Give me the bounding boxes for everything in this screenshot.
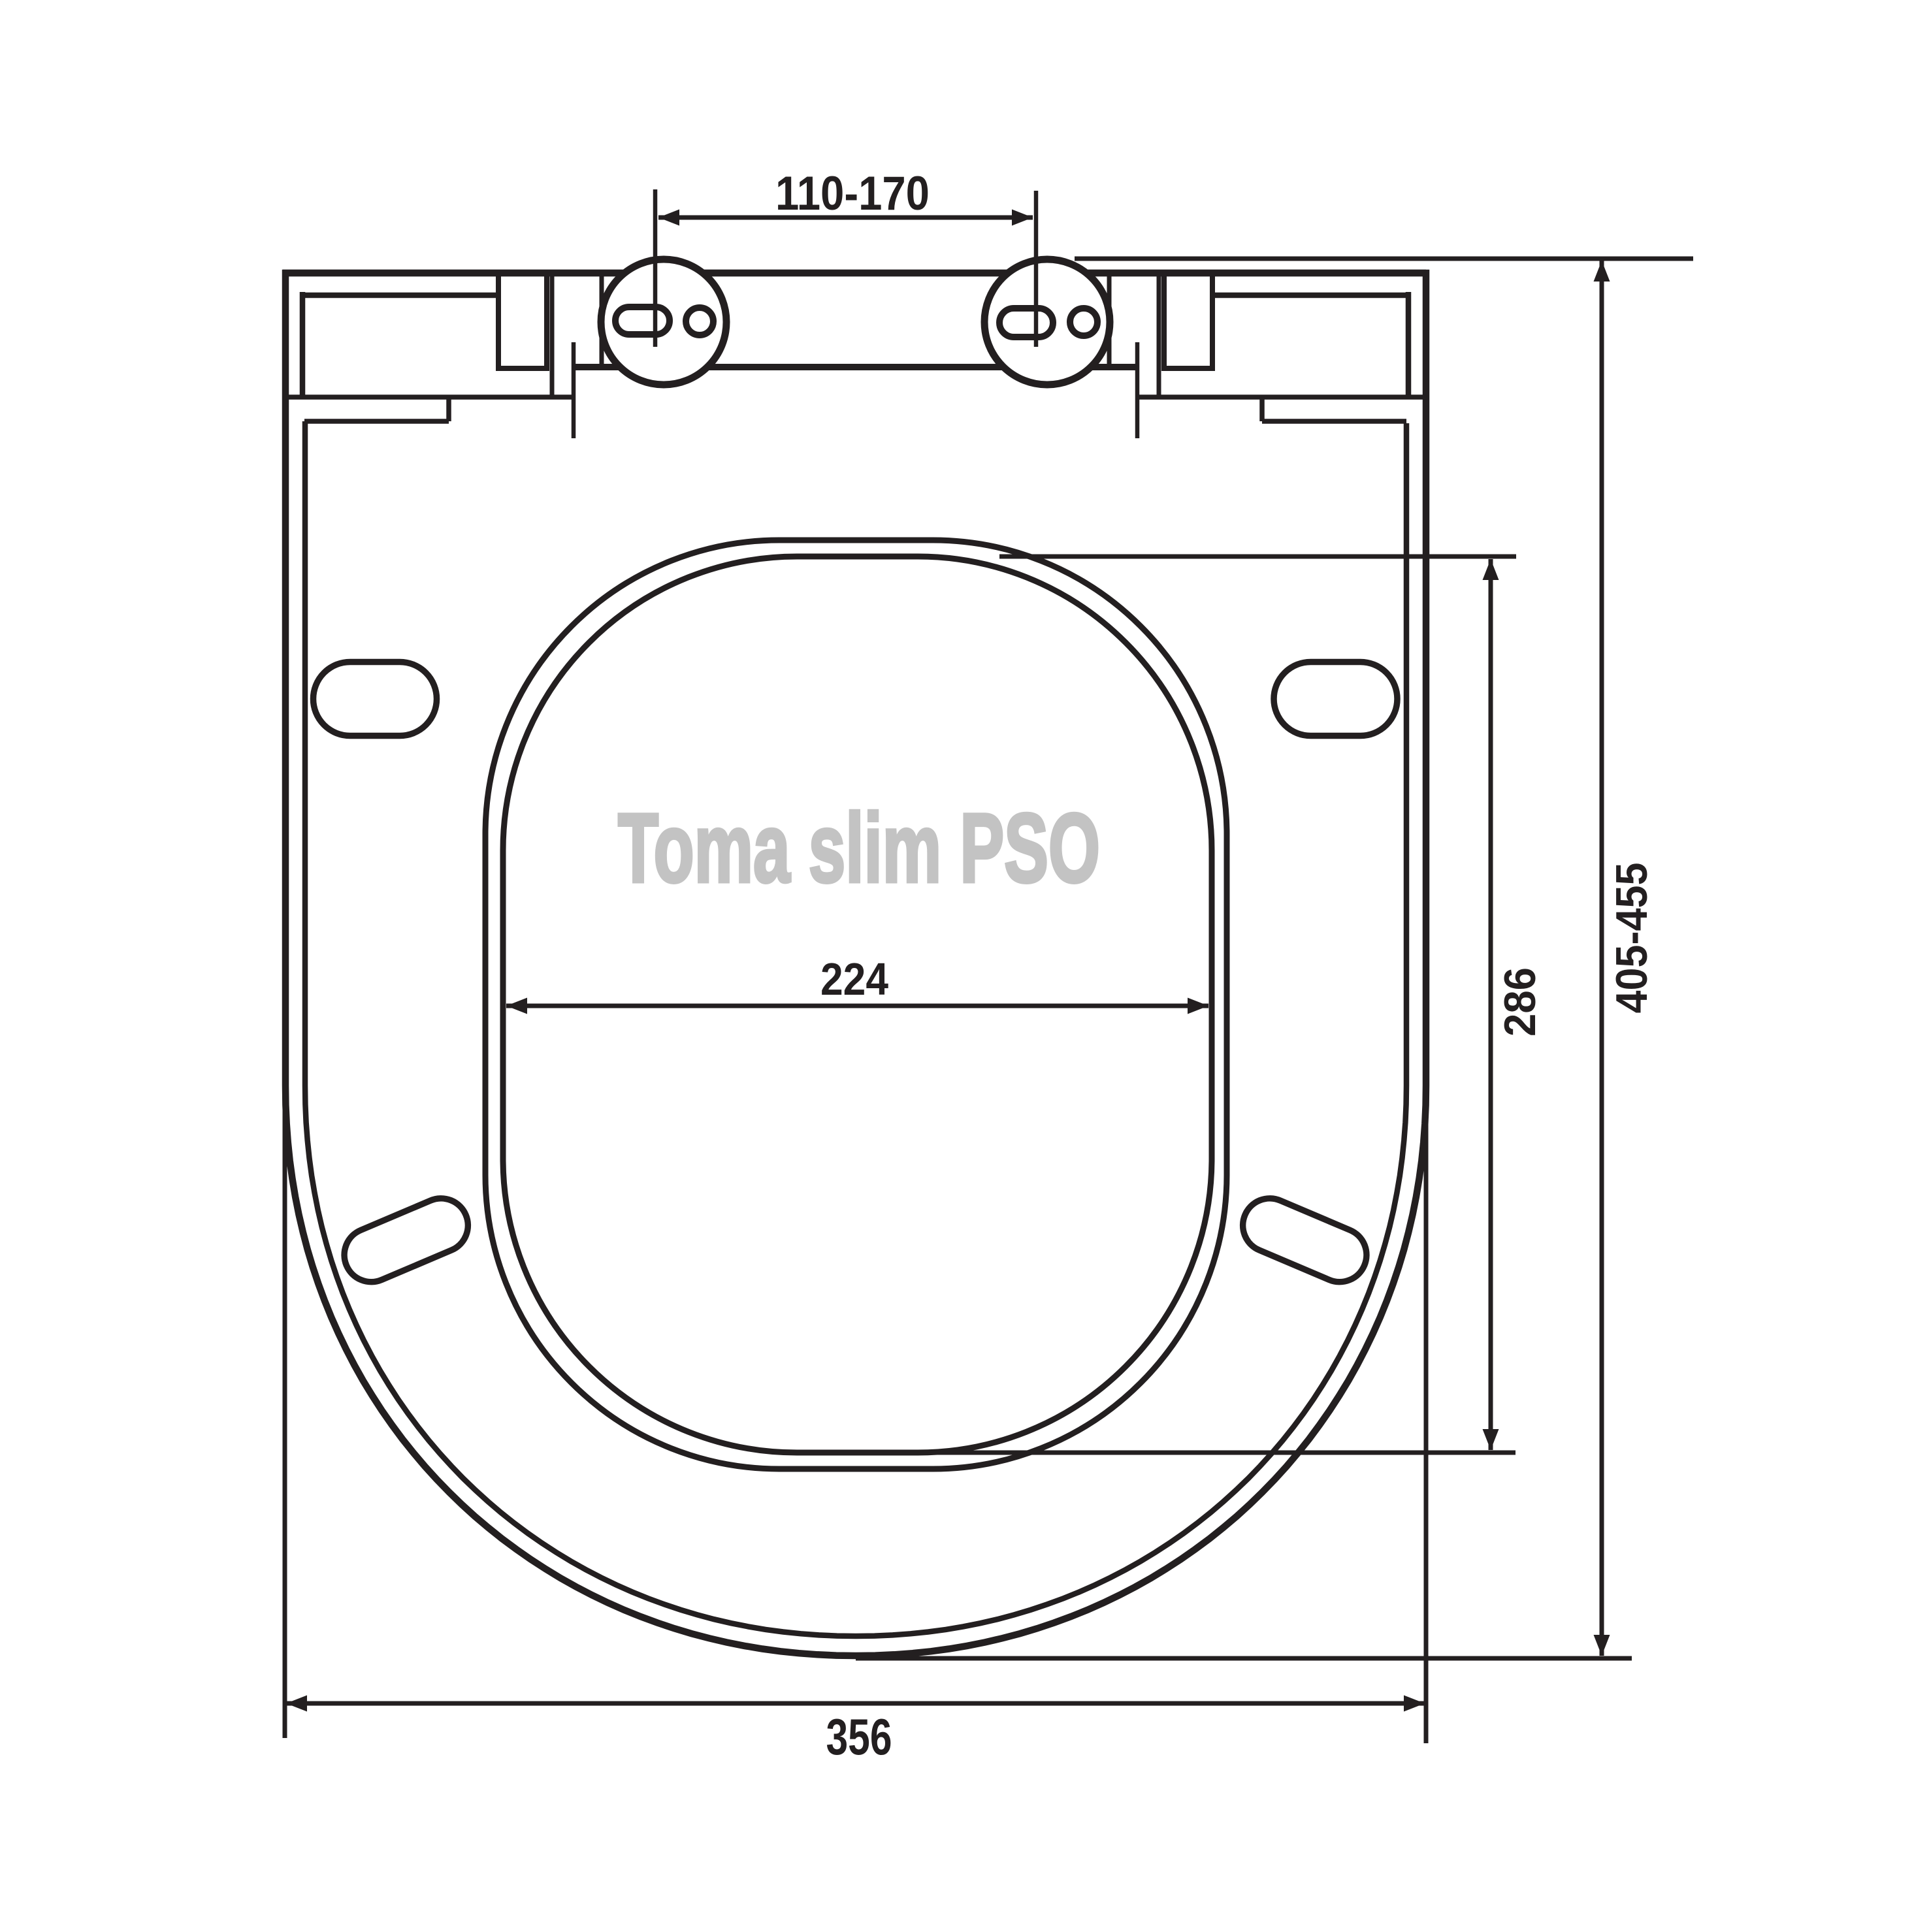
svg-text:356: 356 [826,1708,892,1765]
svg-text:224: 224 [820,954,888,1005]
svg-text:286: 286 [1495,967,1545,1037]
svg-text:405-455: 405-455 [1607,863,1657,1014]
svg-text:Toma slim PSO: Toma slim PSO [618,793,1100,903]
svg-text:110-170: 110-170 [775,167,930,220]
